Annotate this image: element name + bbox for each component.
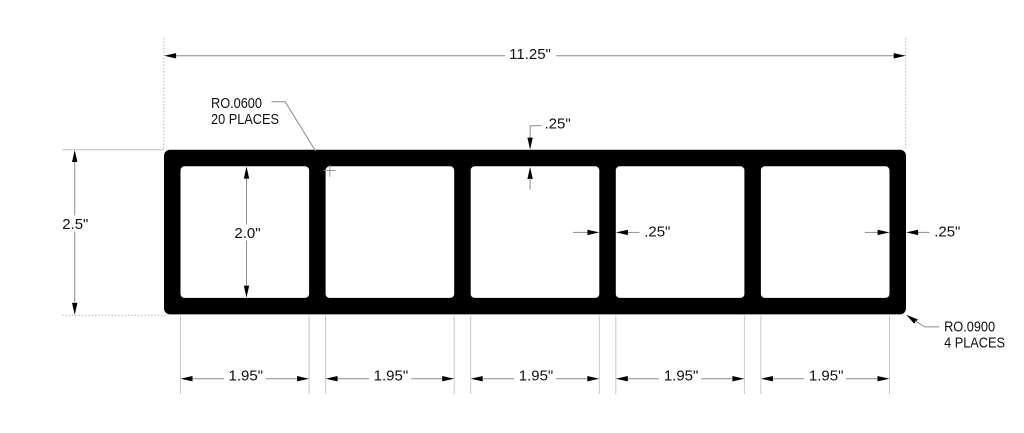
- svg-text:.25": .25": [934, 223, 960, 240]
- svg-text:1.95": 1.95": [664, 367, 699, 384]
- svg-text:4 PLACES: 4 PLACES: [944, 333, 1005, 350]
- svg-text:.25": .25": [644, 223, 670, 240]
- svg-text:2.5": 2.5": [62, 216, 88, 233]
- svg-text:1.95": 1.95": [374, 367, 409, 384]
- svg-text:2.0": 2.0": [234, 225, 260, 242]
- svg-text:20 PLACES: 20 PLACES: [211, 110, 279, 127]
- svg-text:11.25": 11.25": [509, 46, 551, 63]
- svg-text:1.95": 1.95": [229, 367, 264, 384]
- svg-text:RO.0600: RO.0600: [211, 94, 262, 111]
- svg-text:1.95": 1.95": [809, 367, 844, 384]
- svg-text:RO.0900: RO.0900: [944, 317, 995, 334]
- svg-text:.25": .25": [545, 116, 571, 133]
- svg-text:1.95": 1.95": [519, 367, 554, 384]
